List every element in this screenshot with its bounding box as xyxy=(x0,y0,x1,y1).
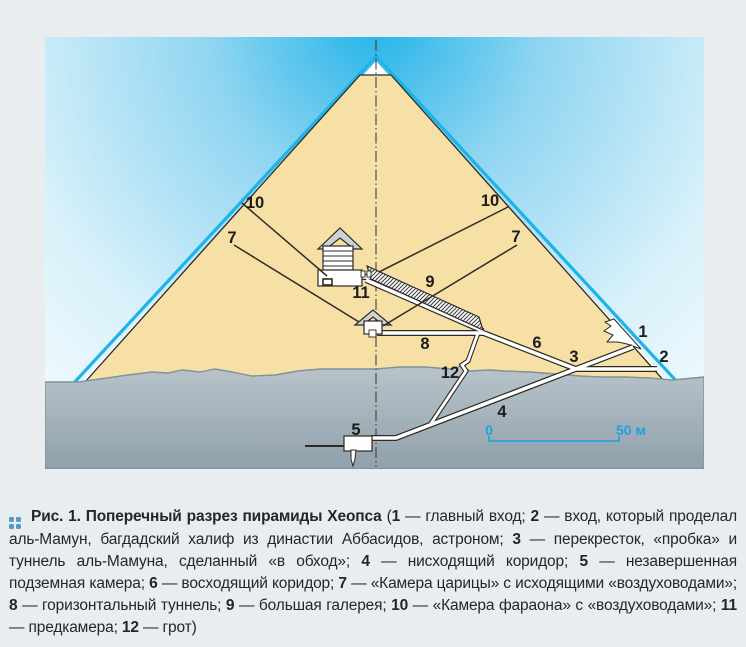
sarcophagus xyxy=(323,279,332,285)
diagram-label-1: 1 xyxy=(638,323,647,341)
figure-caption-text: Рис. 1. Поперечный разрез пирамиды Хеопс… xyxy=(9,508,737,636)
portcullis-slot xyxy=(361,271,365,277)
diagram-label-4: 4 xyxy=(497,403,507,421)
diagram-scale-fifty: 50 м xyxy=(616,422,646,438)
ground-surface xyxy=(45,366,704,469)
diagram-label-2: 2 xyxy=(659,348,668,366)
diagram-scale-zero: 0 xyxy=(485,422,493,438)
diagram-label-7-left: 7 xyxy=(227,229,236,247)
diagram-label-10-left: 10 xyxy=(246,194,264,212)
pyramid-cross-section-diagram: 123456778910101112050 м xyxy=(0,0,746,476)
ground xyxy=(45,366,704,469)
diagram-label-11: 11 xyxy=(352,284,369,302)
diagram-label-6: 6 xyxy=(532,334,541,352)
figure-caption: Рис. 1. Поперечный разрез пирамиды Хеопс… xyxy=(0,506,746,639)
portcullis-slot xyxy=(367,271,371,277)
diagram-label-8: 8 xyxy=(420,335,429,353)
queens-chamber-door xyxy=(369,330,376,337)
diagram-label-12: 12 xyxy=(441,364,459,382)
figure-bullet-icon xyxy=(9,517,21,529)
diagram-label-5: 5 xyxy=(351,421,360,439)
diagram-label-10-right: 10 xyxy=(481,192,499,210)
diagram-label-3: 3 xyxy=(569,348,578,366)
diagram-label-9: 9 xyxy=(425,273,434,291)
diagram-label-7-right: 7 xyxy=(511,228,520,246)
